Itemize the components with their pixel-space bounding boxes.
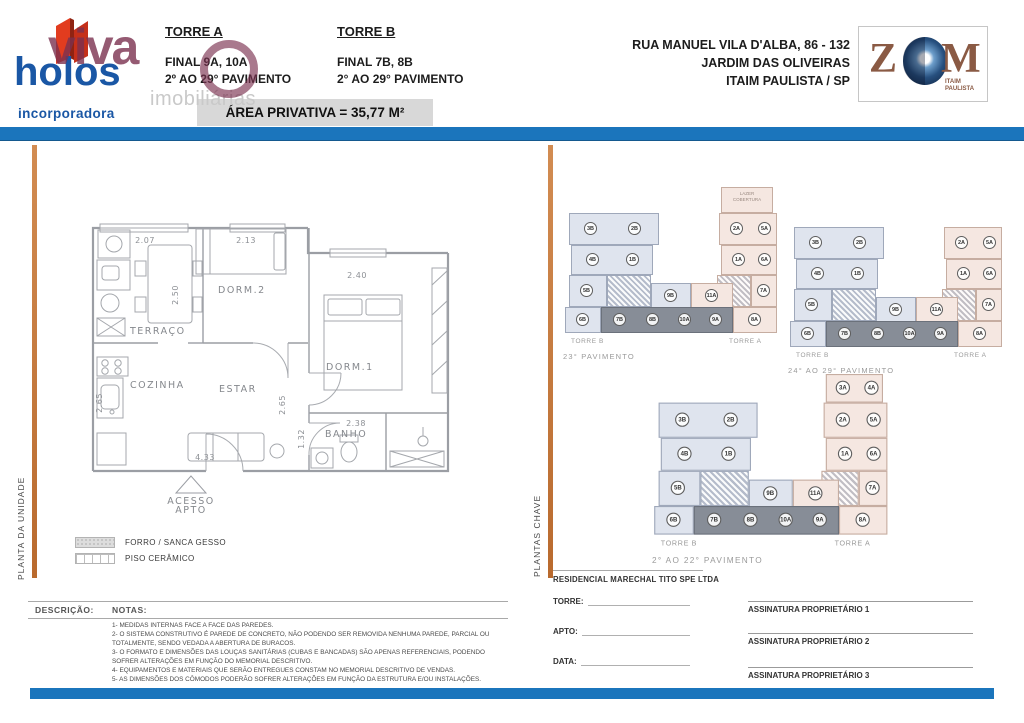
access-triangle-icon xyxy=(176,476,206,493)
unit-circle-5B: 5B xyxy=(580,284,593,297)
unit-circle-8A: 8A xyxy=(748,313,761,326)
dim-banho-width: 2.38 xyxy=(346,419,366,428)
unit-circle-8B: 8B xyxy=(743,513,757,527)
keyplan-block-b_top xyxy=(659,403,758,438)
unit-circle-4B: 4B xyxy=(586,253,599,266)
unit-circle-6A: 6A xyxy=(983,267,996,280)
keyplan-block-b_mid xyxy=(571,245,653,275)
kitchen-stove xyxy=(97,357,128,376)
terraco-table-chairs xyxy=(135,245,202,323)
unit-circle-3B: 3B xyxy=(675,413,689,427)
label-cozinha: COZINHA xyxy=(130,380,185,391)
unit-circle-1A: 1A xyxy=(957,267,970,280)
forro-label: FORRO / SANCA GESSO xyxy=(125,538,226,547)
dim-terraco-depth: 2.50 xyxy=(171,285,180,305)
note-3: 3- O FORMATO E DIMENSÕES DAS LOUÇAS SANI… xyxy=(112,649,506,667)
terraco-washer xyxy=(98,230,130,258)
unit-circle-7A: 7A xyxy=(982,298,995,311)
unit-circle-10A: 10A xyxy=(678,313,691,326)
dim-cozinha-depth: 2.65 xyxy=(95,393,104,413)
unit-circle-6A: 6A xyxy=(867,447,881,461)
dim-banho-depth: 1.32 xyxy=(297,429,306,449)
label-dorm1: DORM.1 xyxy=(326,362,374,373)
unit-circle-5A: 5A xyxy=(867,413,881,427)
unit-circle-9B: 9B xyxy=(664,289,677,302)
notes-mid-rule xyxy=(28,618,508,619)
signature-label-2: ASSINATURA PROPRIETÁRIO 2 xyxy=(748,637,973,646)
keyplan3-floor-label: 2° AO 22° PAVIMENTO xyxy=(652,556,763,566)
signature-line-1[interactable] xyxy=(748,601,973,602)
unit-circle-1B: 1B xyxy=(626,253,639,266)
field-apto-fill-line[interactable] xyxy=(582,627,690,636)
unit-circle-8A: 8A xyxy=(973,327,986,340)
note-2: 2- O SISTEMA CONSTRUTIVO É PAREDE DE CON… xyxy=(112,631,506,649)
address-line-2: JARDIM DAS OLIVEIRAS xyxy=(520,54,850,72)
keyplan2-torre-b-label: TORRE B xyxy=(796,352,829,359)
unit-floorplan-drawing: 2.07 2.13 2.40 2.50 2.65 2.65 4.33 2.38 … xyxy=(88,213,468,515)
unit-circle-2A: 2A xyxy=(836,413,850,427)
note-4: 4- EQUIPAMENTOS E MATERIAIS QUE SERÃO EN… xyxy=(112,667,506,676)
unit-circle-4B: 4B xyxy=(811,267,824,280)
keyplan-block-b_core xyxy=(700,471,748,506)
zom-z-letter: Z xyxy=(869,35,897,83)
unit-circle-11A: 11A xyxy=(808,486,822,500)
unit-circle-2B: 2B xyxy=(853,236,866,249)
field-data-label: DATA: xyxy=(553,657,577,666)
notes-top-rule xyxy=(28,601,508,602)
unit-circle-10A: 10A xyxy=(779,513,793,527)
dim-dorm2-width: 2.13 xyxy=(236,236,256,245)
unit-circle-1B: 1B xyxy=(851,267,864,280)
unit-circle-2A: 2A xyxy=(730,222,743,235)
brand-holos-text: holos xyxy=(14,50,121,95)
field-torre: TORRE: xyxy=(553,597,690,606)
dim-terraco-width: 2.07 xyxy=(135,236,155,245)
kitchen-fridge xyxy=(97,433,126,465)
torre-a-title: TORRE A xyxy=(165,24,335,39)
company-name: RESIDENCIAL MARECHAL TITO SPE LTDA xyxy=(553,575,719,584)
keyplan1-torre-b-label: TORRE B xyxy=(571,338,604,345)
unit-circle-7B: 7B xyxy=(613,313,626,326)
unit-circle-8B: 8B xyxy=(646,313,659,326)
field-apto-label: APTO: xyxy=(553,627,578,636)
keyplan2-torre-a-label: TORRE A xyxy=(954,352,987,359)
keyplan-block-b_mid xyxy=(796,259,878,289)
unit-circle-9B: 9B xyxy=(889,303,902,316)
unit-circle-7A: 7A xyxy=(865,481,879,495)
zom-m-letter: M xyxy=(941,35,981,83)
keyplan-block-b_core xyxy=(832,289,876,321)
room-labels: TERRAÇO COZINHA ESTAR DORM.2 DORM.1 BANH… xyxy=(129,285,374,440)
unit-circle-6B: 6B xyxy=(576,313,589,326)
unit-circle-5B: 5B xyxy=(671,481,685,495)
unit-circle-6B: 6B xyxy=(801,327,814,340)
keyplan-block-b_core xyxy=(607,275,651,307)
zom-city-text: ITAIM PAULISTA xyxy=(945,79,974,93)
company-rule xyxy=(553,570,703,571)
keyplan1-floor-label: 23° PAVIMENTO xyxy=(563,352,635,361)
legend-piso: PISO CERÂMICO xyxy=(75,552,195,564)
dim-estar-width: 4.33 xyxy=(195,453,215,462)
top-blue-divider xyxy=(0,127,1024,141)
unit-circle-9B: 9B xyxy=(763,486,777,500)
signature-block-1: ASSINATURA PROPRIETÁRIO 1 xyxy=(748,601,973,614)
unit-circle-9A: 9A xyxy=(934,327,947,340)
keyplan3-torre-b-label: TORRE B xyxy=(661,540,697,548)
middle-orange-bar xyxy=(548,145,553,578)
legend-forro: FORRO / SANCA GESSO xyxy=(75,536,226,548)
plantas-chave-label: PLANTAS CHAVE xyxy=(532,462,542,577)
keyplan-block-b_top xyxy=(569,213,659,245)
field-apto: APTO: xyxy=(553,627,690,636)
signature-label-3: ASSINATURA PROPRIETÁRIO 3 xyxy=(748,671,973,680)
unit-circle-3A: 3A xyxy=(836,381,850,395)
keyplan-block-b_top xyxy=(794,227,884,259)
unit-circle-11A: 11A xyxy=(930,303,943,316)
unit-circle-5A: 5A xyxy=(758,222,771,235)
key-plan-24-29-pavimento: TORRE B TORRE A 24° AO 29° PAVIMENTO 3B2… xyxy=(788,201,1002,383)
unit-circle-6A: 6A xyxy=(758,253,771,266)
unit-circle-10A: 10A xyxy=(903,327,916,340)
piso-label: PISO CERÂMICO xyxy=(125,554,195,563)
torre-b-final: FINAL 7B, 8B xyxy=(337,55,507,69)
unit-circle-2B: 2B xyxy=(724,413,738,427)
unit-circle-1A: 1A xyxy=(732,253,745,266)
bottom-blue-divider xyxy=(30,688,994,699)
keyplan1-torre-a-label: TORRE A xyxy=(729,338,762,345)
notas-label: NOTAS: xyxy=(112,605,147,615)
unit-circle-1B: 1B xyxy=(721,447,735,461)
unit-circle-7B: 7B xyxy=(707,513,721,527)
label-banho: BANHO xyxy=(325,429,367,440)
unit-circle-7A: 7A xyxy=(757,284,770,297)
unit-circle-3B: 3B xyxy=(809,236,822,249)
unit-circle-9A: 9A xyxy=(709,313,722,326)
unit-circle-7B: 7B xyxy=(838,327,851,340)
condenser-box xyxy=(97,318,125,336)
label-estar: ESTAR xyxy=(219,384,257,395)
label-terraco: TERRAÇO xyxy=(129,326,186,337)
dim-estar-depth: 2.65 xyxy=(278,395,287,415)
unit-circle-5B: 5B xyxy=(805,298,818,311)
unit-circle-5A: 5A xyxy=(983,236,996,249)
unit-circle-11A: 11A xyxy=(705,289,718,302)
unit-circle-8A: 8A xyxy=(856,513,870,527)
key-plan-23-pavimento: TORRE B TORRE A 23° PAVIMENTO LAZERCOBER… xyxy=(563,187,777,369)
dorm1-wardrobe xyxy=(432,268,447,393)
address-line-3: ITAIM PAULISTA / SP xyxy=(520,72,850,90)
service-box xyxy=(390,451,444,467)
signature-block-2: ASSINATURA PROPRIETÁRIO 2 xyxy=(748,633,973,646)
piso-swatch xyxy=(75,553,115,564)
estar-side-table xyxy=(270,444,284,458)
banho-vanity xyxy=(311,448,333,468)
unit-circle-1A: 1A xyxy=(838,447,852,461)
unit-circle-6B: 6B xyxy=(666,513,680,527)
access-marker: ACESSO APTO xyxy=(167,476,215,515)
torre-b-header: TORRE B FINAL 7B, 8B 2° AO 29° PAVIMENTO xyxy=(337,24,507,86)
keyplan-block-b_mid xyxy=(661,438,751,471)
keyplan-block-a_roof: LAZERCOBERTURA xyxy=(721,187,773,213)
key-plan-2-22-pavimento: TORRE B TORRE A 2° AO 22° PAVIMENTO 3B2B… xyxy=(652,374,887,574)
unit-circle-2A: 2A xyxy=(955,236,968,249)
notes-list: 1- MEDIDAS INTERNAS FACE A FACE DAS PARE… xyxy=(112,622,506,685)
signature-block-3: ASSINATURA PROPRIETÁRIO 3 xyxy=(748,667,973,680)
unit-circle-9A: 9A xyxy=(813,513,827,527)
field-data-fill-line[interactable] xyxy=(581,657,690,666)
brand-incorporadora-text: incorporadora xyxy=(18,106,115,121)
dorm1-bed xyxy=(324,295,402,390)
zom-logo: Z M ITAIM PAULISTA xyxy=(858,26,988,102)
left-orange-bar xyxy=(32,145,37,578)
field-torre-label: TORRE: xyxy=(553,597,584,606)
unit-circle-4A: 4A xyxy=(864,381,878,395)
torre-b-title: TORRE B xyxy=(337,24,507,39)
note-1: 1- MEDIDAS INTERNAS FACE A FACE DAS PARE… xyxy=(112,622,506,631)
unit-circle-3B: 3B xyxy=(584,222,597,235)
unit-circle-2B: 2B xyxy=(628,222,641,235)
floorplan-sales-sheet: { "header": { "logo": { "watermark": "vi… xyxy=(0,0,1024,723)
project-address: RUA MANUEL VILA D'ALBA, 86 - 132 JARDIM … xyxy=(520,36,850,90)
keyplan3-torre-a-label: TORRE A xyxy=(835,540,871,548)
note-5: 5- AS DIMENSÕES DOS CÔMODOS PODERÃO SOFR… xyxy=(112,676,506,685)
dim-dorm1-width: 2.40 xyxy=(347,271,367,280)
terraco-tank xyxy=(97,260,130,312)
unit-circle-8B: 8B xyxy=(871,327,884,340)
planta-da-unidade-label: PLANTA DA UNIDADE xyxy=(16,425,26,580)
descricao-label: DESCRIÇÃO: xyxy=(35,605,94,615)
signature-line-2[interactable] xyxy=(748,633,973,634)
unit-circle-4B: 4B xyxy=(677,447,691,461)
signature-line-3[interactable] xyxy=(748,667,973,668)
label-dorm2: DORM.2 xyxy=(218,285,266,296)
field-data: DATA: xyxy=(553,657,690,666)
shower-head xyxy=(418,427,428,446)
lazer-cobertura-label: LAZERCOBERTURA xyxy=(722,188,772,203)
torre-b-range: 2° AO 29° PAVIMENTO xyxy=(337,72,507,86)
address-line-1: RUA MANUEL VILA D'ALBA, 86 - 132 xyxy=(520,36,850,54)
forro-swatch xyxy=(75,537,115,548)
access-line2: APTO xyxy=(175,505,207,515)
viva-watermark-ring xyxy=(200,40,258,98)
signature-label-1: ASSINATURA PROPRIETÁRIO 1 xyxy=(748,605,973,614)
field-torre-fill-line[interactable] xyxy=(588,597,690,606)
